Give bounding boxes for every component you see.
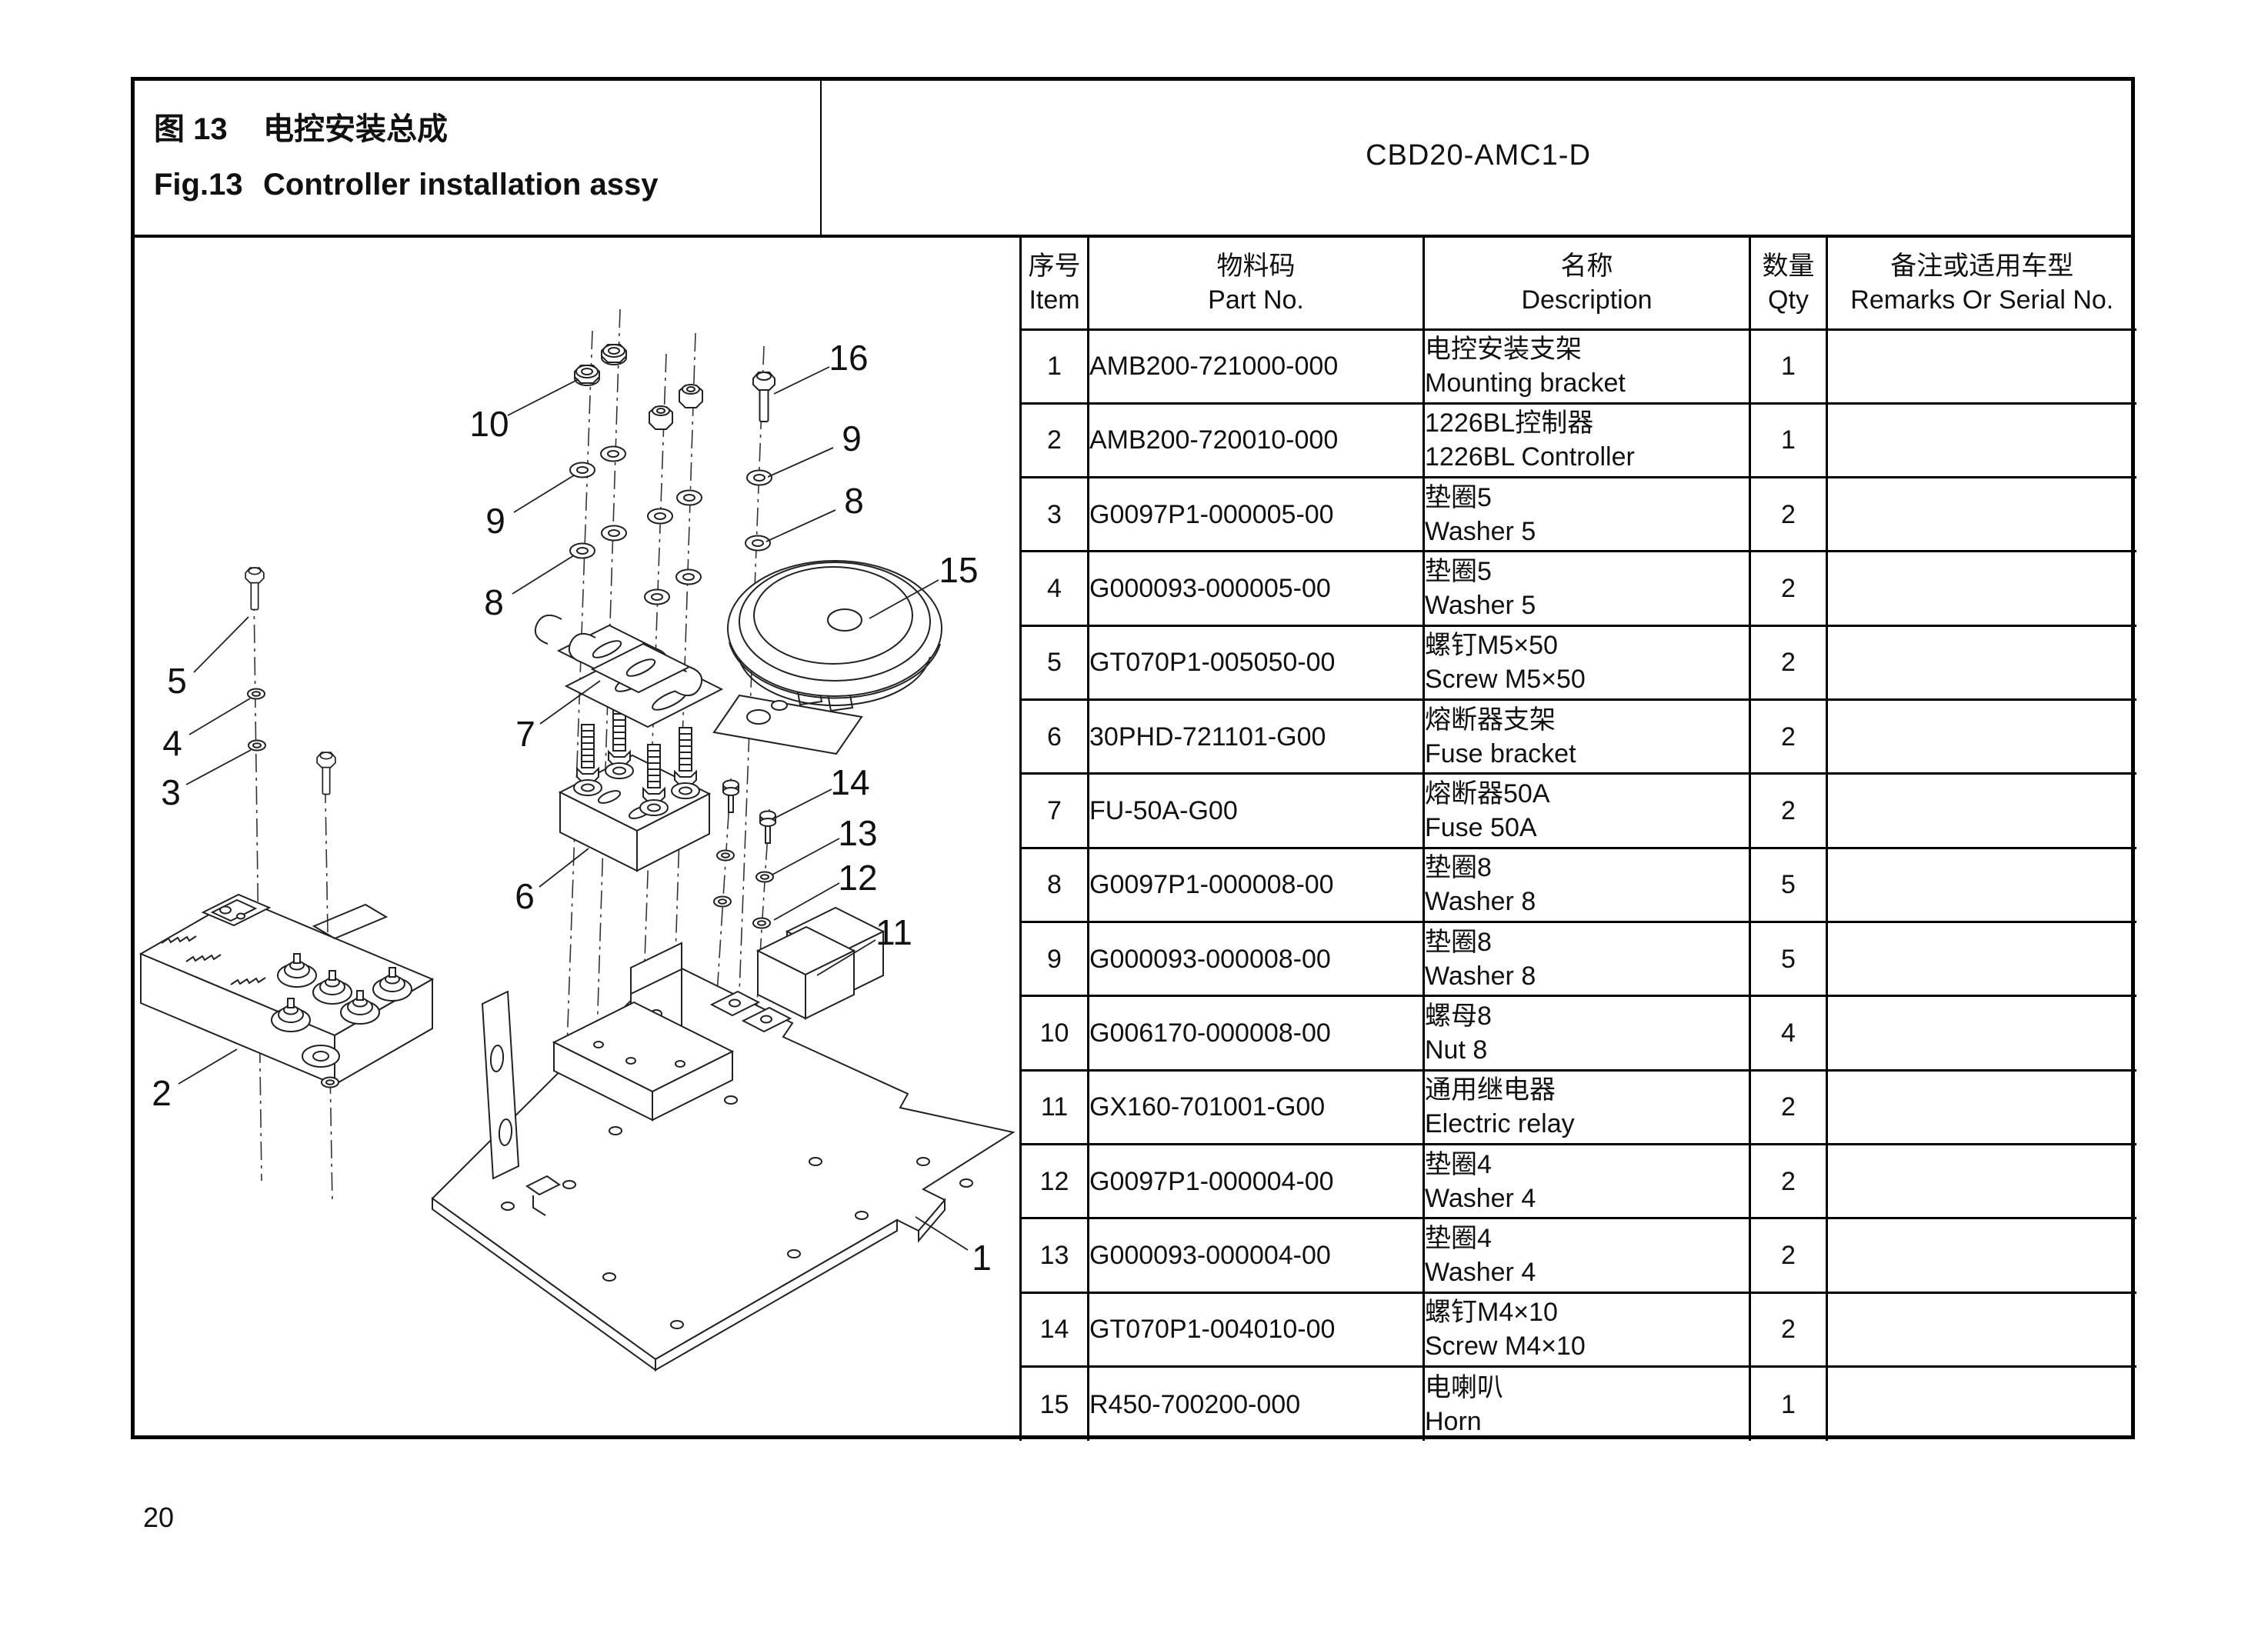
description-en: Horn [1425, 1405, 1749, 1438]
description-en: Nut 8 [1425, 1033, 1749, 1067]
description-en: Fuse bracket [1425, 737, 1749, 771]
cell-qty-14: 2 [1750, 1292, 1827, 1366]
column-header-remarks-zh: 备注或适用车型 [1828, 249, 2136, 283]
description-zh: 螺钉M5×50 [1425, 628, 1749, 662]
column-header-qty-en: Qty [1751, 283, 1826, 317]
cell-qty-15: 1 [1750, 1367, 1827, 1441]
table-row-item-12: 12G0097P1-000004-00垫圈4Washer 42 [1021, 1145, 2136, 1218]
column-header-qty-zh: 数量 [1751, 249, 1826, 283]
parts-table-header-row: 序号 Item 物料码 Part No. 名称 Description 数量 Q… [1021, 238, 2136, 329]
description-zh: 垫圈8 [1425, 925, 1749, 959]
diagram-electric-relays [712, 908, 883, 1032]
cell-part-no-1: AMB200-721000-000 [1089, 329, 1424, 403]
description-zh: 1226BL控制器 [1425, 406, 1749, 440]
diagram-callout-9: 9 [842, 418, 862, 458]
parts-table: 序号 Item 物料码 Part No. 名称 Description 数量 Q… [1019, 238, 2136, 1441]
diagram-callout-2: 2 [152, 1073, 172, 1113]
table-row-item-7: 7FU-50A-G00熔断器50AFuse 50A2 [1021, 774, 2136, 848]
cell-qty-11: 2 [1750, 1070, 1827, 1144]
cell-qty-2: 1 [1750, 403, 1827, 477]
description-zh: 垫圈4 [1425, 1222, 1749, 1255]
callout-leader-14 [775, 789, 832, 818]
diagram-callout-8: 8 [484, 582, 504, 622]
cell-part-no-13: G000093-000004-00 [1089, 1218, 1424, 1292]
description-en: Washer 8 [1425, 885, 1749, 918]
cell-item-15: 15 [1021, 1367, 1089, 1441]
cell-item-1: 1 [1021, 329, 1089, 403]
figure-number-zh: 图 13 [154, 102, 263, 157]
cell-item-10: 10 [1021, 996, 1089, 1070]
diagram-callout-7: 7 [515, 714, 535, 754]
cell-part-no-2: AMB200-720010-000 [1089, 403, 1424, 477]
cell-description-5: 螺钉M5×50Screw M5×50 [1424, 625, 1750, 699]
description-zh: 垫圈4 [1425, 1148, 1749, 1182]
cell-remarks-11 [1827, 1070, 2136, 1144]
cell-part-no-9: G000093-000008-00 [1089, 922, 1424, 996]
cell-item-11: 11 [1021, 1070, 1089, 1144]
figure-name-zh: 电控安装总成 [263, 102, 448, 157]
diagram-callout-15: 15 [939, 550, 978, 590]
diagram-fuses [535, 615, 722, 727]
cell-qty-9: 5 [1750, 922, 1827, 996]
catalog-page: 图 13 电控安装总成 Fig.13 Controller installati… [0, 0, 2268, 1640]
table-row-item-3: 3G0097P1-000005-00垫圈5Washer 52 [1021, 478, 2136, 552]
diagram-callout-3: 3 [161, 772, 181, 812]
diagram-callout-12: 12 [838, 858, 877, 898]
column-header-part-zh: 物料码 [1089, 249, 1423, 283]
description-zh: 电控安装支架 [1425, 332, 1749, 366]
cell-remarks-1 [1827, 329, 2136, 403]
cell-description-10: 螺母8Nut 8 [1424, 996, 1750, 1070]
description-en: Mounting bracket [1425, 366, 1749, 400]
description-en: 1226BL Controller [1425, 440, 1749, 474]
column-header-part-en: Part No. [1089, 283, 1423, 317]
diagram-callout-6: 6 [515, 876, 535, 916]
cell-description-3: 垫圈5Washer 5 [1424, 478, 1750, 552]
table-row-item-9: 9G000093-000008-00垫圈8Washer 85 [1021, 922, 2136, 996]
cell-remarks-9 [1827, 922, 2136, 996]
cell-description-8: 垫圈8Washer 8 [1424, 848, 1750, 922]
cell-remarks-14 [1827, 1292, 2136, 1366]
column-header-part-no: 物料码 Part No. [1089, 238, 1424, 329]
description-zh: 电喇叭 [1425, 1371, 1749, 1405]
cell-part-no-12: G0097P1-000004-00 [1089, 1145, 1424, 1218]
figure-name-en: Controller installation assy [263, 157, 658, 212]
table-row-item-14: 14GT070P1-004010-00螺钉M4×10Screw M4×102 [1021, 1292, 2136, 1366]
callout-leader-6 [539, 848, 589, 887]
cell-remarks-6 [1827, 700, 2136, 774]
table-row-item-1: 1AMB200-721000-000电控安装支架Mounting bracket… [1021, 329, 2136, 403]
parts-table-body: 1AMB200-721000-000电控安装支架Mounting bracket… [1021, 329, 2136, 1441]
cell-part-no-15: R450-700200-000 [1089, 1367, 1424, 1441]
cell-item-13: 13 [1021, 1218, 1089, 1292]
cell-part-no-14: GT070P1-004010-00 [1089, 1292, 1424, 1366]
cell-description-12: 垫圈4Washer 4 [1424, 1145, 1750, 1218]
diagram-callout-5: 5 [167, 661, 187, 701]
callout-leader-2 [178, 1049, 237, 1084]
callout-leader-13 [772, 838, 839, 875]
cell-qty-3: 2 [1750, 478, 1827, 552]
cell-part-no-8: G0097P1-000008-00 [1089, 848, 1424, 922]
description-en: Washer 4 [1425, 1255, 1749, 1289]
model-code: CBD20-AMC1-D [822, 77, 2135, 235]
description-zh: 垫圈8 [1425, 851, 1749, 885]
table-row-item-15: 15R450-700200-000电喇叭Horn1 [1021, 1367, 2136, 1441]
cell-remarks-7 [1827, 774, 2136, 848]
cell-qty-4: 2 [1750, 552, 1827, 625]
diagram-callout-8: 8 [844, 481, 864, 521]
cell-item-9: 9 [1021, 922, 1089, 996]
cell-description-14: 螺钉M4×10Screw M4×10 [1424, 1292, 1750, 1366]
description-en: Screw M5×50 [1425, 662, 1749, 696]
table-row-item-13: 13G000093-000004-00垫圈4Washer 42 [1021, 1218, 2136, 1292]
cell-qty-13: 2 [1750, 1218, 1827, 1292]
cell-qty-1: 1 [1750, 329, 1827, 403]
cell-item-4: 4 [1021, 552, 1089, 625]
cell-remarks-12 [1827, 1145, 2136, 1218]
column-header-item: 序号 Item [1021, 238, 1089, 329]
cell-part-no-4: G000093-000005-00 [1089, 552, 1424, 625]
diagram-callout-13: 13 [838, 813, 877, 853]
cell-description-9: 垫圈8Washer 8 [1424, 922, 1750, 996]
description-zh: 熔断器支架 [1425, 703, 1749, 737]
cell-item-6: 6 [1021, 700, 1089, 774]
cell-remarks-15 [1827, 1367, 2136, 1441]
cell-qty-6: 2 [1750, 700, 1827, 774]
diagram-callout-10: 10 [469, 404, 509, 444]
table-row-item-5: 5GT070P1-005050-00螺钉M5×50Screw M5×502 [1021, 625, 2136, 699]
column-header-description: 名称 Description [1424, 238, 1750, 329]
cell-description-6: 熔断器支架Fuse bracket [1424, 700, 1750, 774]
cell-part-no-5: GT070P1-005050-00 [1089, 625, 1424, 699]
diagram-mounting-bracket [432, 962, 1013, 1370]
column-header-remarks: 备注或适用车型 Remarks Or Serial No. [1827, 238, 2136, 329]
column-header-desc-en: Description [1425, 283, 1749, 317]
description-en: Washer 5 [1425, 515, 1749, 548]
cell-item-3: 3 [1021, 478, 1089, 552]
cell-item-14: 14 [1021, 1292, 1089, 1366]
callout-leader-9 [514, 475, 574, 512]
cell-part-no-7: FU-50A-G00 [1089, 774, 1424, 848]
description-en: Washer 4 [1425, 1182, 1749, 1215]
cell-qty-12: 2 [1750, 1145, 1827, 1218]
cell-part-no-6: 30PHD-721101-G00 [1089, 700, 1424, 774]
description-zh: 通用继电器 [1425, 1073, 1749, 1107]
description-zh: 垫圈5 [1425, 555, 1749, 588]
description-en: Electric relay [1425, 1107, 1749, 1141]
cell-qty-10: 4 [1750, 996, 1827, 1070]
diagram-callout-16: 16 [829, 338, 868, 378]
callout-leader-4 [189, 698, 250, 735]
cell-part-no-11: GX160-701001-G00 [1089, 1070, 1424, 1144]
diagram-controller [141, 895, 432, 1085]
diagram-callout-4: 4 [162, 723, 182, 763]
cell-description-2: 1226BL控制器1226BL Controller [1424, 403, 1750, 477]
cell-remarks-2 [1827, 403, 2136, 477]
cell-item-8: 8 [1021, 848, 1089, 922]
table-row-item-11: 11GX160-701001-G00通用继电器Electric relay2 [1021, 1070, 2136, 1144]
description-en: Screw M4×10 [1425, 1329, 1749, 1363]
column-header-remarks-en: Remarks Or Serial No. [1828, 283, 2136, 317]
callout-leader-10 [508, 379, 579, 415]
cell-remarks-5 [1827, 625, 2136, 699]
cell-qty-5: 2 [1750, 625, 1827, 699]
diagram-callout-11: 11 [876, 912, 912, 952]
cell-remarks-10 [1827, 996, 2136, 1070]
description-zh: 熔断器50A [1425, 777, 1749, 811]
callout-leader-9 [768, 448, 833, 477]
column-header-item-zh: 序号 [1022, 249, 1087, 283]
column-header-qty: 数量 Qty [1750, 238, 1827, 329]
cell-item-12: 12 [1021, 1145, 1089, 1218]
description-zh: 螺钉M4×10 [1425, 1295, 1749, 1329]
table-row-item-10: 10G006170-000008-00螺母8Nut 84 [1021, 996, 2136, 1070]
cell-description-13: 垫圈4Washer 4 [1424, 1218, 1750, 1292]
description-en: Washer 8 [1425, 959, 1749, 993]
description-en: Fuse 50A [1425, 811, 1749, 845]
exploded-view-diagram: 1098169815543714131211621 [138, 254, 1016, 1462]
diagram-callout-1: 1 [972, 1238, 992, 1278]
diagram-callout-14: 14 [830, 762, 869, 802]
description-zh: 螺母8 [1425, 999, 1749, 1033]
callout-leader-3 [186, 750, 251, 785]
description-en: Washer 5 [1425, 588, 1749, 622]
cell-description-15: 电喇叭Horn [1424, 1367, 1750, 1441]
cell-description-1: 电控安装支架Mounting bracket [1424, 329, 1750, 403]
table-row-item-2: 2AMB200-720010-0001226BL控制器1226BL Contro… [1021, 403, 2136, 477]
callout-leader-8 [766, 510, 835, 542]
figure-title-en: Fig.13 Controller installation assy [154, 157, 658, 212]
cell-description-7: 熔断器50AFuse 50A [1424, 774, 1750, 848]
cell-part-no-10: G006170-000008-00 [1089, 996, 1424, 1070]
diagram-fuse-holder-block [560, 708, 709, 871]
column-header-item-en: Item [1022, 283, 1087, 317]
diagram-callout-9: 9 [485, 501, 505, 541]
figure-title-zh: 图 13 电控安装总成 [154, 102, 658, 157]
column-header-desc-zh: 名称 [1425, 249, 1749, 283]
callout-leader-5 [194, 617, 248, 672]
cell-remarks-13 [1827, 1218, 2136, 1292]
cell-remarks-3 [1827, 478, 2136, 552]
cell-item-7: 7 [1021, 774, 1089, 848]
callout-leader-8 [512, 555, 574, 594]
cell-qty-7: 2 [1750, 774, 1827, 848]
cell-remarks-8 [1827, 848, 2136, 922]
cell-part-no-3: G0097P1-000005-00 [1089, 478, 1424, 552]
cell-description-11: 通用继电器Electric relay [1424, 1070, 1750, 1144]
table-row-item-4: 4G000093-000005-00垫圈5Washer 52 [1021, 552, 2136, 625]
cell-description-4: 垫圈5Washer 5 [1424, 552, 1750, 625]
table-row-item-6: 630PHD-721101-G00熔断器支架Fuse bracket2 [1021, 700, 2136, 774]
page-number: 20 [143, 1502, 174, 1534]
table-row-item-8: 8G0097P1-000008-00垫圈8Washer 85 [1021, 848, 2136, 922]
cell-item-5: 5 [1021, 625, 1089, 699]
description-zh: 垫圈5 [1425, 481, 1749, 515]
cell-qty-8: 5 [1750, 848, 1827, 922]
cell-item-2: 2 [1021, 403, 1089, 477]
callout-leader-16 [774, 367, 829, 394]
cell-remarks-4 [1827, 552, 2136, 625]
figure-title-block: 图 13 电控安装总成 Fig.13 Controller installati… [154, 102, 658, 212]
diagram-horn [714, 561, 942, 754]
figure-number-en: Fig.13 [154, 157, 263, 212]
